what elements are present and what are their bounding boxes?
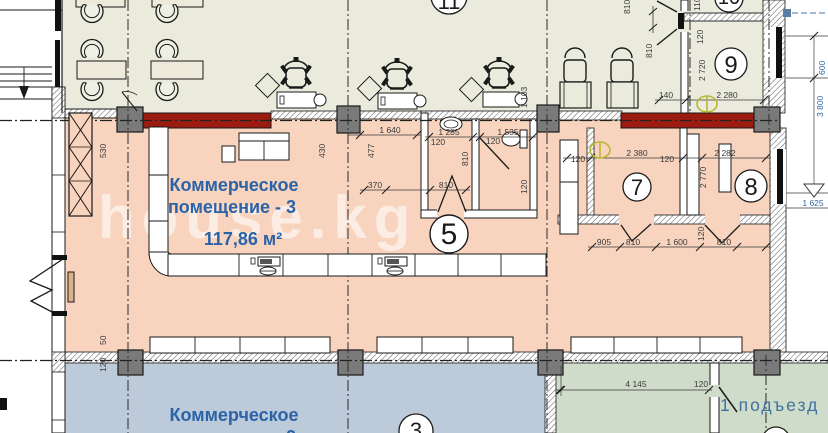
svg-text:3 800: 3 800 — [815, 95, 825, 117]
svg-text:110: 110 — [692, 0, 702, 11]
svg-text:11: 11 — [438, 0, 461, 14]
svg-text:2 380: 2 380 — [626, 148, 648, 158]
svg-text:2 770: 2 770 — [698, 166, 708, 188]
svg-text:3: 3 — [410, 418, 422, 433]
svg-text:120: 120 — [694, 379, 708, 389]
svg-text:9: 9 — [724, 52, 737, 79]
svg-text:7: 7 — [631, 175, 643, 200]
svg-text:8: 8 — [744, 174, 757, 201]
svg-text:Коммерческое: Коммерческое — [170, 175, 299, 195]
svg-text:120: 120 — [571, 154, 585, 164]
svg-text:1 625: 1 625 — [802, 198, 824, 208]
svg-text:1 600: 1 600 — [666, 237, 688, 247]
svg-text:810: 810 — [460, 152, 470, 166]
svg-text:10: 10 — [718, 0, 740, 9]
svg-text:905: 905 — [597, 237, 611, 247]
svg-text:50: 50 — [98, 335, 108, 345]
svg-text:2 282: 2 282 — [714, 148, 736, 158]
svg-text:4 145: 4 145 — [625, 379, 647, 389]
svg-text:810: 810 — [717, 237, 731, 247]
svg-text:370: 370 — [368, 180, 382, 190]
svg-text:5: 5 — [441, 218, 458, 251]
svg-text:помещение - 2: помещение - 2 — [168, 427, 296, 433]
svg-text:2 280: 2 280 — [716, 90, 738, 100]
svg-text:477: 477 — [366, 144, 376, 158]
svg-text:120: 120 — [98, 358, 108, 372]
svg-text:120: 120 — [695, 30, 705, 44]
svg-text:1 640: 1 640 — [379, 125, 401, 135]
svg-text:120: 120 — [696, 227, 706, 241]
svg-text:1 103: 1 103 — [519, 86, 529, 108]
svg-text:600: 600 — [817, 61, 827, 75]
svg-text:120: 120 — [431, 137, 445, 147]
svg-text:140: 140 — [659, 90, 673, 100]
svg-text:430: 430 — [317, 144, 327, 158]
svg-text:810: 810 — [439, 180, 453, 190]
svg-text:530: 530 — [98, 144, 108, 158]
svg-text:117,86 м²: 117,86 м² — [204, 229, 282, 249]
svg-text:810: 810 — [626, 237, 640, 247]
svg-text:2 720: 2 720 — [697, 59, 707, 81]
svg-text:помещение - 3: помещение - 3 — [168, 197, 296, 217]
svg-text:120: 120 — [486, 136, 500, 146]
svg-text:Коммерческое: Коммерческое — [170, 405, 299, 425]
svg-text:120: 120 — [660, 154, 674, 164]
svg-text:1 535: 1 535 — [497, 127, 519, 137]
svg-text:120: 120 — [519, 180, 529, 194]
svg-text:1 285: 1 285 — [438, 127, 460, 137]
svg-text:1 подъезд: 1 подъезд — [720, 395, 819, 415]
svg-text:810: 810 — [622, 0, 632, 14]
svg-text:810: 810 — [644, 44, 654, 58]
